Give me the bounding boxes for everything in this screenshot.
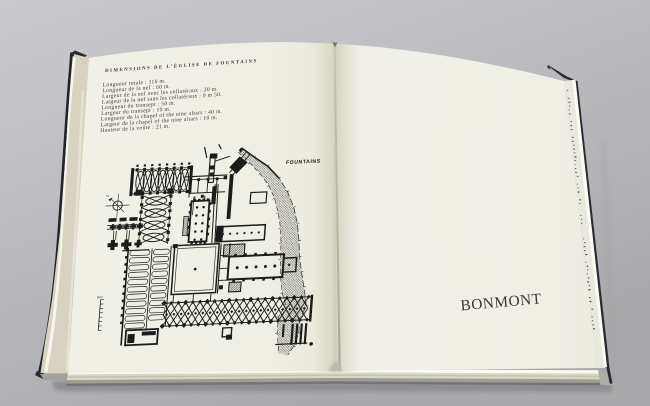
svg-text:50m: 50m [97, 295, 104, 299]
